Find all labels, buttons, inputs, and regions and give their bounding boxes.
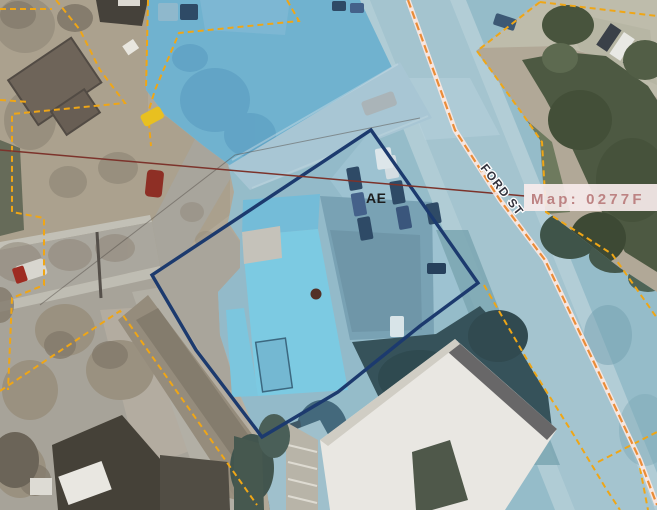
svg-text:Map: 0277F: Map: 0277F (531, 191, 645, 208)
svg-text:AE: AE (366, 190, 386, 206)
